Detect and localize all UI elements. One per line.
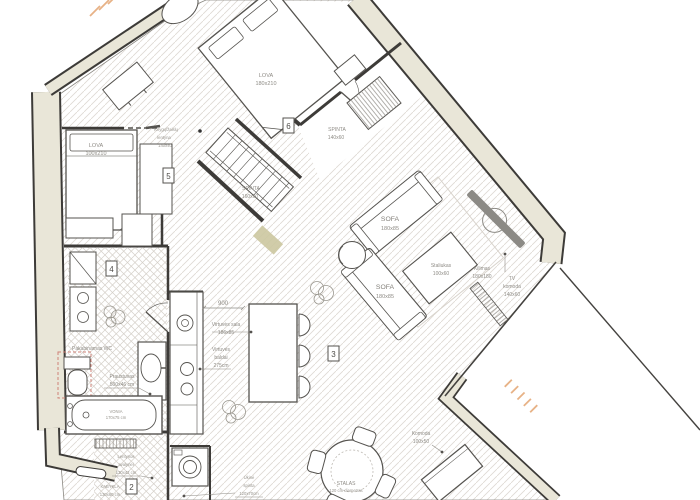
left-desk <box>122 214 152 246</box>
wardrobe-160-size: 160x60 <box>242 194 259 200</box>
shoes-label-1: Lentynos <box>118 454 135 459</box>
dining-table-size: 120 cm diametras <box>329 488 362 493</box>
svg-text:2: 2 <box>129 483 134 492</box>
sofa-1-size: 180x85 <box>381 226 399 232</box>
washing-machine <box>172 448 208 486</box>
ceiling-point <box>198 129 202 133</box>
coffee-table-size: 100x60 <box>433 271 450 277</box>
utility-label-3: 120x70cm <box>239 491 259 496</box>
shelf-label-2: lentyna <box>157 135 171 140</box>
bathtub-size: 170x75 cm <box>106 415 127 420</box>
floor-plan: LOVA 180x210 SPINTA 140x60 6 SPINTA 160x… <box>0 0 700 500</box>
komoda-size: 100x50 <box>413 439 430 445</box>
wardrobe-140-size: 140x60 <box>328 135 345 141</box>
bathroom-sink <box>138 342 166 400</box>
sofa-1-label: SOFA <box>381 216 400 223</box>
sofa-2-label: SOFA <box>376 284 395 291</box>
site-edge-line <box>560 268 700 430</box>
svg-text:900: 900 <box>218 301 229 307</box>
tv-label-3: 140x60 <box>504 292 521 298</box>
svg-text:4: 4 <box>109 265 114 274</box>
marker-3: 3 <box>328 346 339 361</box>
kitchen-cabinets <box>170 292 203 434</box>
rug-size: 180x180 <box>472 274 491 280</box>
shoes-label-3: 130x42 cm <box>116 470 137 475</box>
shoes-label-2: avalynei <box>118 462 133 467</box>
sink-label: Praustuvas <box>109 374 135 380</box>
floor-plan-canvas: LOVA 180x210 SPINTA 140x60 6 SPINTA 160x… <box>0 0 700 500</box>
rack-label: KABYKLA <box>100 484 119 489</box>
bed-top-label: LOVA <box>259 73 274 79</box>
bathtub-label: VONIA <box>109 409 122 414</box>
marker-4: 4 <box>106 261 117 276</box>
terrace-rail-hatch <box>90 0 118 16</box>
units-label-3: 275cm <box>213 363 228 369</box>
bathroom-corner-unit <box>70 252 96 284</box>
radiator-entry <box>95 439 136 448</box>
wardrobe-160-label: SPINTA <box>242 186 260 192</box>
marker-2: 2 <box>126 479 137 494</box>
window-hatch-bottom-right <box>505 380 538 413</box>
dining-table-label: STALAS <box>337 481 356 487</box>
shelf-label-3: 140x40 <box>158 143 172 148</box>
utility-label-2: spinta <box>243 483 255 488</box>
tv-label-2: komoda <box>503 284 521 290</box>
svg-text:3: 3 <box>331 350 336 359</box>
washer-dryer-column <box>70 287 96 331</box>
bed-top-size: 180x210 <box>255 81 276 87</box>
round-chair <box>339 242 366 269</box>
wc-label: Pakabinamas WC <box>72 346 112 352</box>
sofa-2-size: 180x85 <box>376 294 394 300</box>
rack-size: 130x60 cm <box>100 492 121 497</box>
tv-label-1: TV <box>509 276 516 282</box>
units-label-1: Virtuvės <box>212 347 230 353</box>
island-label-1: Virtuvės sala <box>212 322 241 328</box>
wardrobe-140-label: SPINTA <box>328 127 346 133</box>
coffee-table-label: Staliukas <box>431 263 452 269</box>
island-label-2: 186x85 <box>218 330 235 336</box>
left-shelf-low <box>66 218 113 238</box>
utility-label-1: Ūkinė <box>244 475 255 480</box>
shelf-label-1: Knygų/žaislų <box>154 127 178 132</box>
units-label-2: baldai <box>214 355 227 361</box>
bed-left-size: 100x210 <box>85 151 106 157</box>
marker-6: 6 <box>283 118 294 133</box>
svg-text:6: 6 <box>286 122 291 131</box>
rug-label: Kilimas <box>474 266 491 272</box>
bed-left-label: LOVA <box>89 143 104 149</box>
marker-5: 5 <box>163 168 174 183</box>
sink-size: 500x46 cm <box>110 382 134 388</box>
kitchen-island <box>249 304 310 402</box>
komoda-label: Komoda <box>412 431 431 437</box>
svg-text:5: 5 <box>166 172 171 181</box>
